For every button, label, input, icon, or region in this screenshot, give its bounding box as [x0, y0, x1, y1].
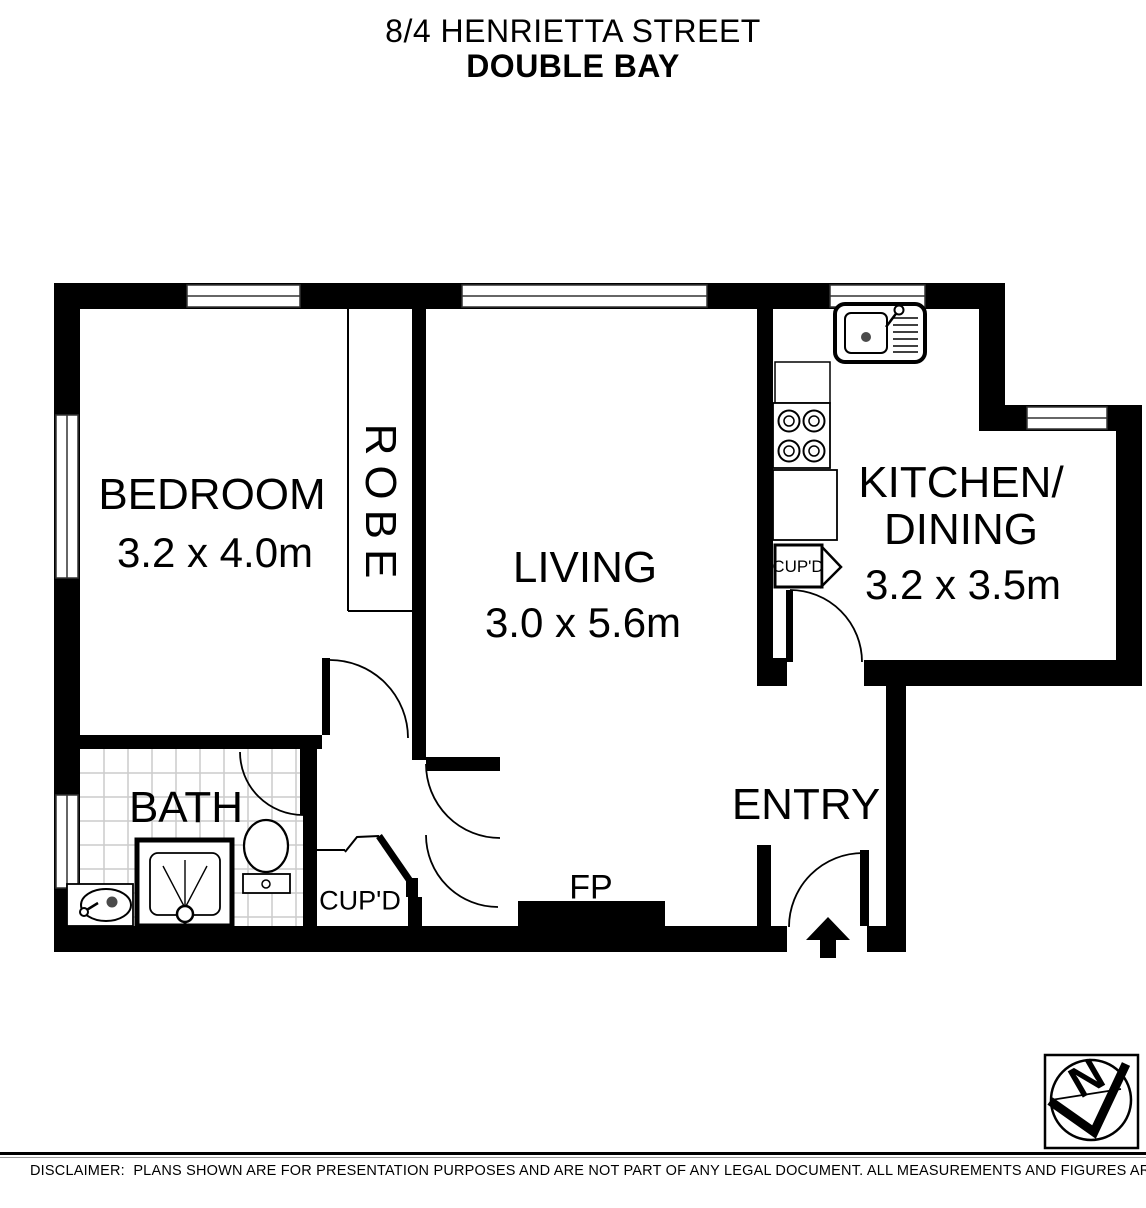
bath-left-window — [56, 795, 78, 888]
footer-divider-thin — [0, 1157, 1146, 1158]
kitchen-dining-dimensions: 3.2 x 3.5m — [865, 561, 1061, 609]
kitchen-counter — [775, 362, 830, 403]
kitchen-east-window — [1027, 407, 1107, 429]
toilet — [243, 820, 290, 893]
hall-cupboard-label: CUP'D — [319, 886, 401, 917]
front-door — [789, 850, 869, 927]
robe-label: ROBE — [355, 424, 405, 589]
address-line: 8/4 HENRIETTA STREET — [0, 14, 1146, 49]
bedroom-top-window — [187, 285, 300, 307]
kitchen-cupboard-label: CUP'D — [772, 557, 823, 577]
kitchen-dining-label-line1: KITCHEN/ — [858, 458, 1063, 508]
disclaimer-text: DISCLAIMER: PLANS SHOWN ARE FOR PRESENTA… — [30, 1163, 1146, 1179]
oven-unit — [773, 470, 837, 540]
entry-arrow — [806, 917, 850, 958]
bedroom-dimensions: 3.2 x 4.0m — [117, 529, 313, 577]
bedroom-label: BEDROOM — [98, 470, 325, 520]
bedroom-door — [322, 658, 408, 738]
living-dimensions: 3.0 x 5.6m — [485, 599, 681, 647]
fireplace-label: FP — [569, 869, 612, 908]
floorplan-page: 8/4 HENRIETTA STREET DOUBLE BAY BEDROOM … — [0, 0, 1146, 1208]
living-label: LIVING — [513, 543, 657, 593]
suburb-line: DOUBLE BAY — [0, 49, 1146, 84]
hall-cupboard-door — [317, 836, 410, 881]
bath-door — [240, 749, 307, 815]
bath-fixtures — [67, 820, 290, 932]
living-door-swings — [426, 764, 500, 907]
kitchen-dining-label-line2: DINING — [884, 505, 1038, 555]
living-top-window — [462, 285, 707, 307]
shower — [137, 840, 232, 932]
plan-title: 8/4 HENRIETTA STREET DOUBLE BAY — [0, 14, 1146, 84]
entry-label: ENTRY — [732, 780, 880, 830]
kitchen-sink — [835, 304, 925, 362]
bedroom-left-window — [56, 415, 78, 578]
footer-divider — [0, 1152, 1146, 1155]
kitchen-door — [786, 590, 862, 662]
stove-cooktop — [773, 403, 830, 468]
bath-label: BATH — [129, 783, 243, 833]
basin — [67, 884, 133, 926]
